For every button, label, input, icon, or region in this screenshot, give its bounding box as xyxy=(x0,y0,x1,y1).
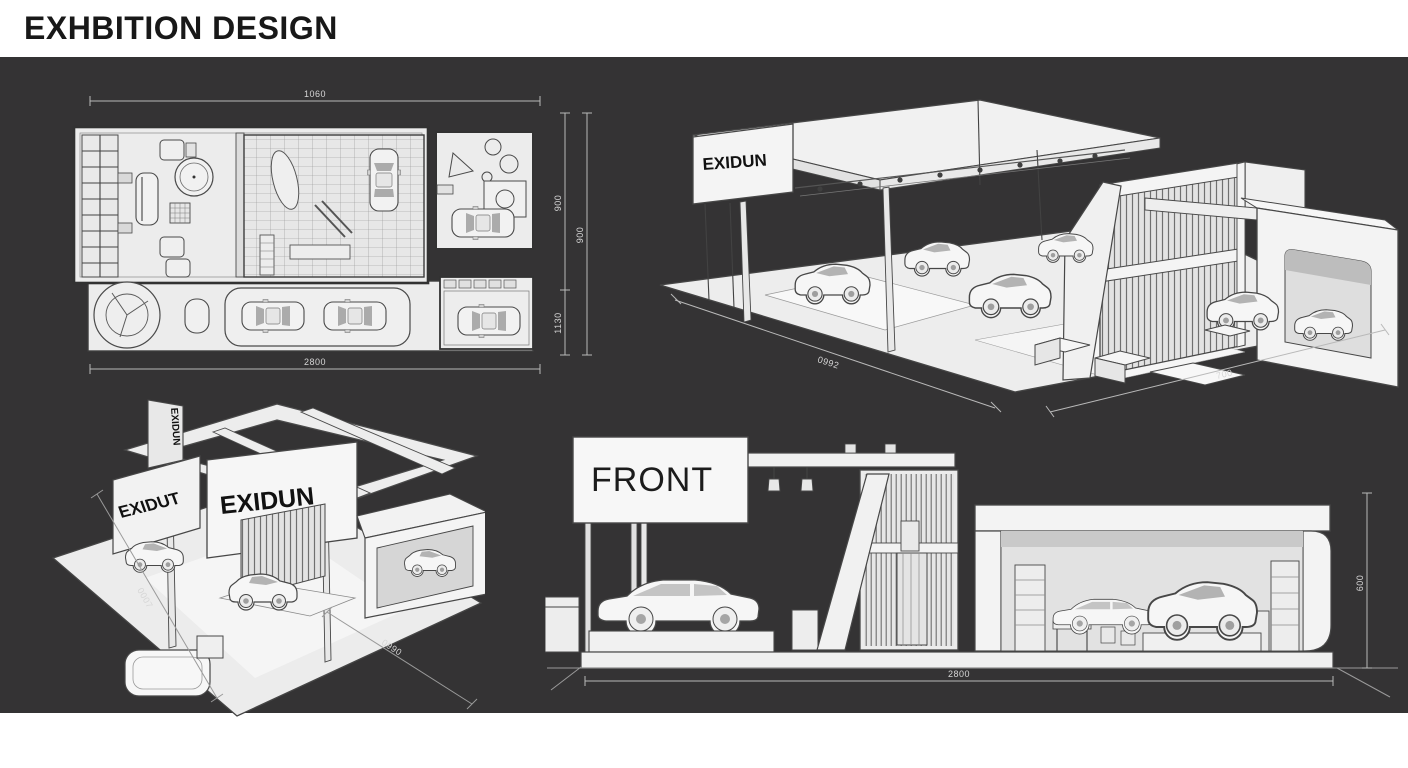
iso-view-left-svg: EXIDUN EXIDUT EXIDUN xyxy=(25,398,485,720)
floor-plan-drawing: 1060 2800 900 1130 900 xyxy=(60,85,600,385)
floor-plan-svg: 1060 2800 900 1130 900 xyxy=(60,85,600,385)
plan-dim-right-inner-top: 900 xyxy=(553,195,563,212)
iso-view-left-drawing: EXIDUN EXIDUT EXIDUN xyxy=(25,398,485,720)
pedestal xyxy=(792,610,818,650)
armchair xyxy=(160,140,184,160)
car-top-icon xyxy=(458,305,520,338)
header-bar: EXHBITION DESIGN xyxy=(0,0,1408,57)
base-platform xyxy=(547,652,1398,697)
display-car-left xyxy=(589,580,774,652)
sofa xyxy=(136,173,158,225)
plan-grid-zone xyxy=(244,135,424,277)
slat-tower-front xyxy=(817,470,958,650)
plan-body xyxy=(74,127,533,351)
footer-bar xyxy=(0,713,1408,768)
front-view-svg: FRONT xyxy=(545,425,1400,715)
car-top-icon xyxy=(324,300,386,333)
slide-canvas: EXHBITION DESIGN 1060 xyxy=(0,0,1408,768)
vertical-sign: EXIDUN xyxy=(148,400,183,468)
armchair xyxy=(166,259,190,277)
iso-right-dim-left: 0992 xyxy=(816,354,840,370)
front-dim-bottom: 2800 xyxy=(948,669,970,679)
iso-view-right-svg: EXIDUN xyxy=(645,90,1400,420)
plan-dim-bottom: 2800 xyxy=(304,357,326,367)
portal-front xyxy=(975,505,1331,651)
cabinet xyxy=(545,597,579,652)
front-dim-right: 600 xyxy=(1355,575,1365,592)
front-view-drawing: FRONT xyxy=(545,425,1400,715)
car-top-icon xyxy=(242,300,304,333)
plan-dim-right-inner-bottom: 1130 xyxy=(553,312,563,333)
crate xyxy=(170,203,190,223)
front-label: FRONT xyxy=(591,461,713,499)
armchair xyxy=(160,237,184,257)
plan-dim-top: 1060 xyxy=(304,89,326,99)
car-top-icon xyxy=(452,207,514,240)
plan-dim-right-outer: 900 xyxy=(575,227,585,244)
iso-view-right-drawing: EXIDUN xyxy=(645,90,1400,420)
page-title: EXHBITION DESIGN xyxy=(24,10,338,47)
